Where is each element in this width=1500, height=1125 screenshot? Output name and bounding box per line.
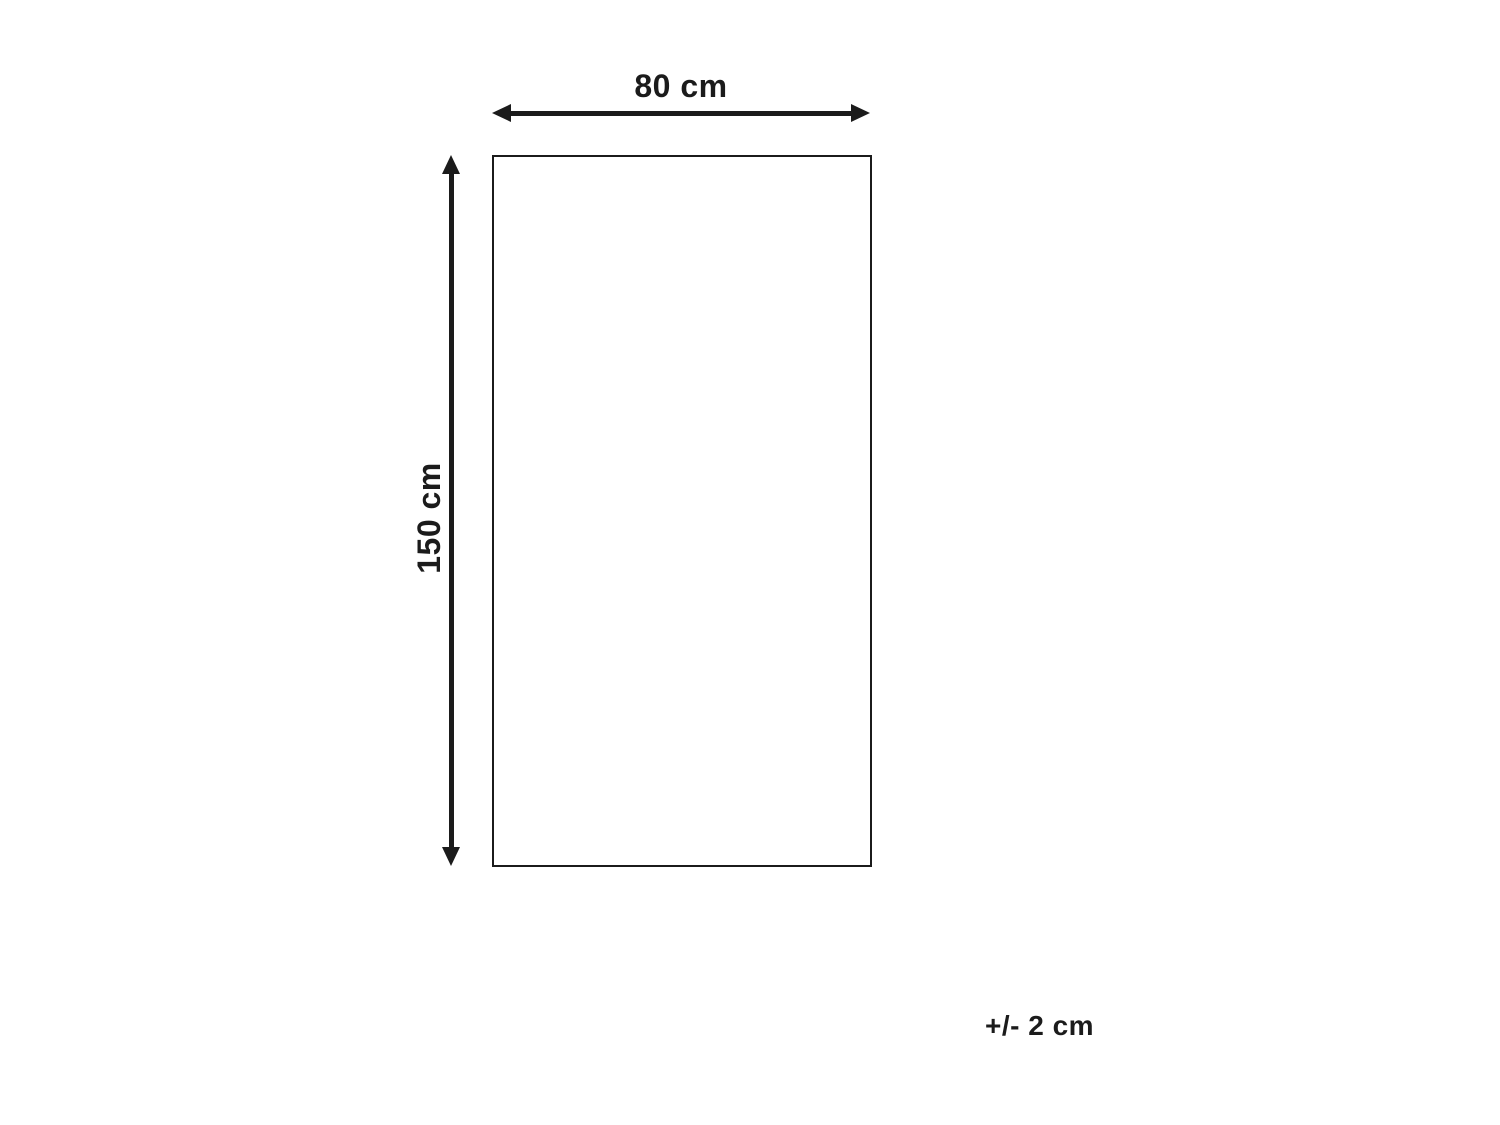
arrow-down-head-icon [442,847,460,866]
width-dimension-arrow [492,104,870,122]
arrow-shaft [506,111,856,116]
height-dimension-arrow [442,155,460,866]
arrow-right-head-icon [851,104,870,122]
product-outline-rectangle [492,155,872,867]
dimension-diagram: 80 cm 150 cm +/- 2 cm [0,0,1500,1125]
width-dimension-label: 80 cm [492,68,870,104]
tolerance-note: +/- 2 cm [985,1010,1094,1042]
arrow-shaft [449,169,454,852]
